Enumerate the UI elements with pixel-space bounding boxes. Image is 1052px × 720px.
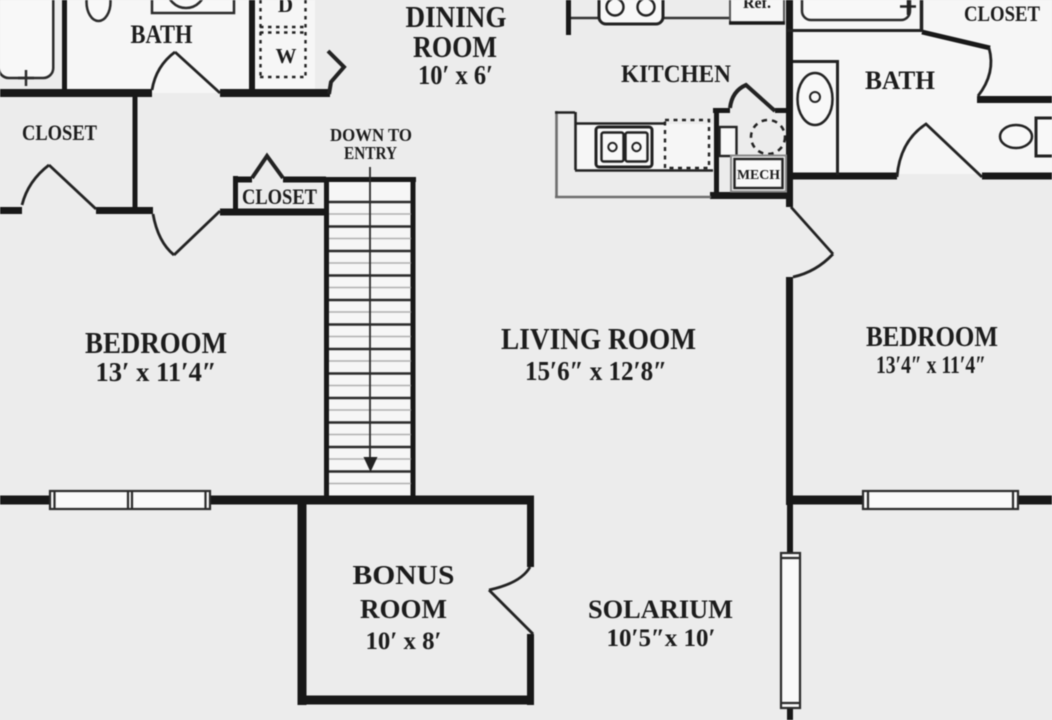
svg-text:ENTRY: ENTRY [344,143,397,163]
svg-text:LIVING ROOM: LIVING ROOM [501,321,696,356]
svg-text:CLOSET: CLOSET [22,120,97,145]
svg-text:ROOM: ROOM [360,594,447,624]
svg-text:CLOSET: CLOSET [964,1,1040,26]
svg-text:SOLARIUM: SOLARIUM [588,595,733,624]
svg-text:KITCHEN: KITCHEN [621,61,731,88]
svg-text:10′ x 8′: 10′ x 8′ [366,628,442,655]
svg-text:BATH: BATH [131,20,193,49]
svg-text:13′ x 11′4″: 13′ x 11′4″ [96,357,217,387]
svg-text:CLOSET: CLOSET [242,184,317,209]
svg-text:BONUS: BONUS [353,560,455,590]
svg-text:W: W [276,44,297,68]
svg-text:BEDROOM: BEDROOM [866,321,998,353]
svg-text:D: D [278,0,293,17]
svg-text:10′5″x 10′: 10′5″x 10′ [607,625,716,652]
svg-text:BATH: BATH [865,66,935,95]
svg-text:DOWN TO: DOWN TO [330,125,412,145]
svg-text:Ref.: Ref. [743,0,771,12]
svg-text:BEDROOM: BEDROOM [85,325,227,360]
svg-text:ROOM: ROOM [413,29,497,64]
svg-text:10′ x 6′: 10′ x 6′ [418,60,493,90]
svg-text:MECH: MECH [737,168,780,183]
svg-text:15′6″ x 12′8″: 15′6″ x 12′8″ [525,356,667,386]
svg-text:13′4″ x 11′4″: 13′4″ x 11′4″ [876,352,986,379]
